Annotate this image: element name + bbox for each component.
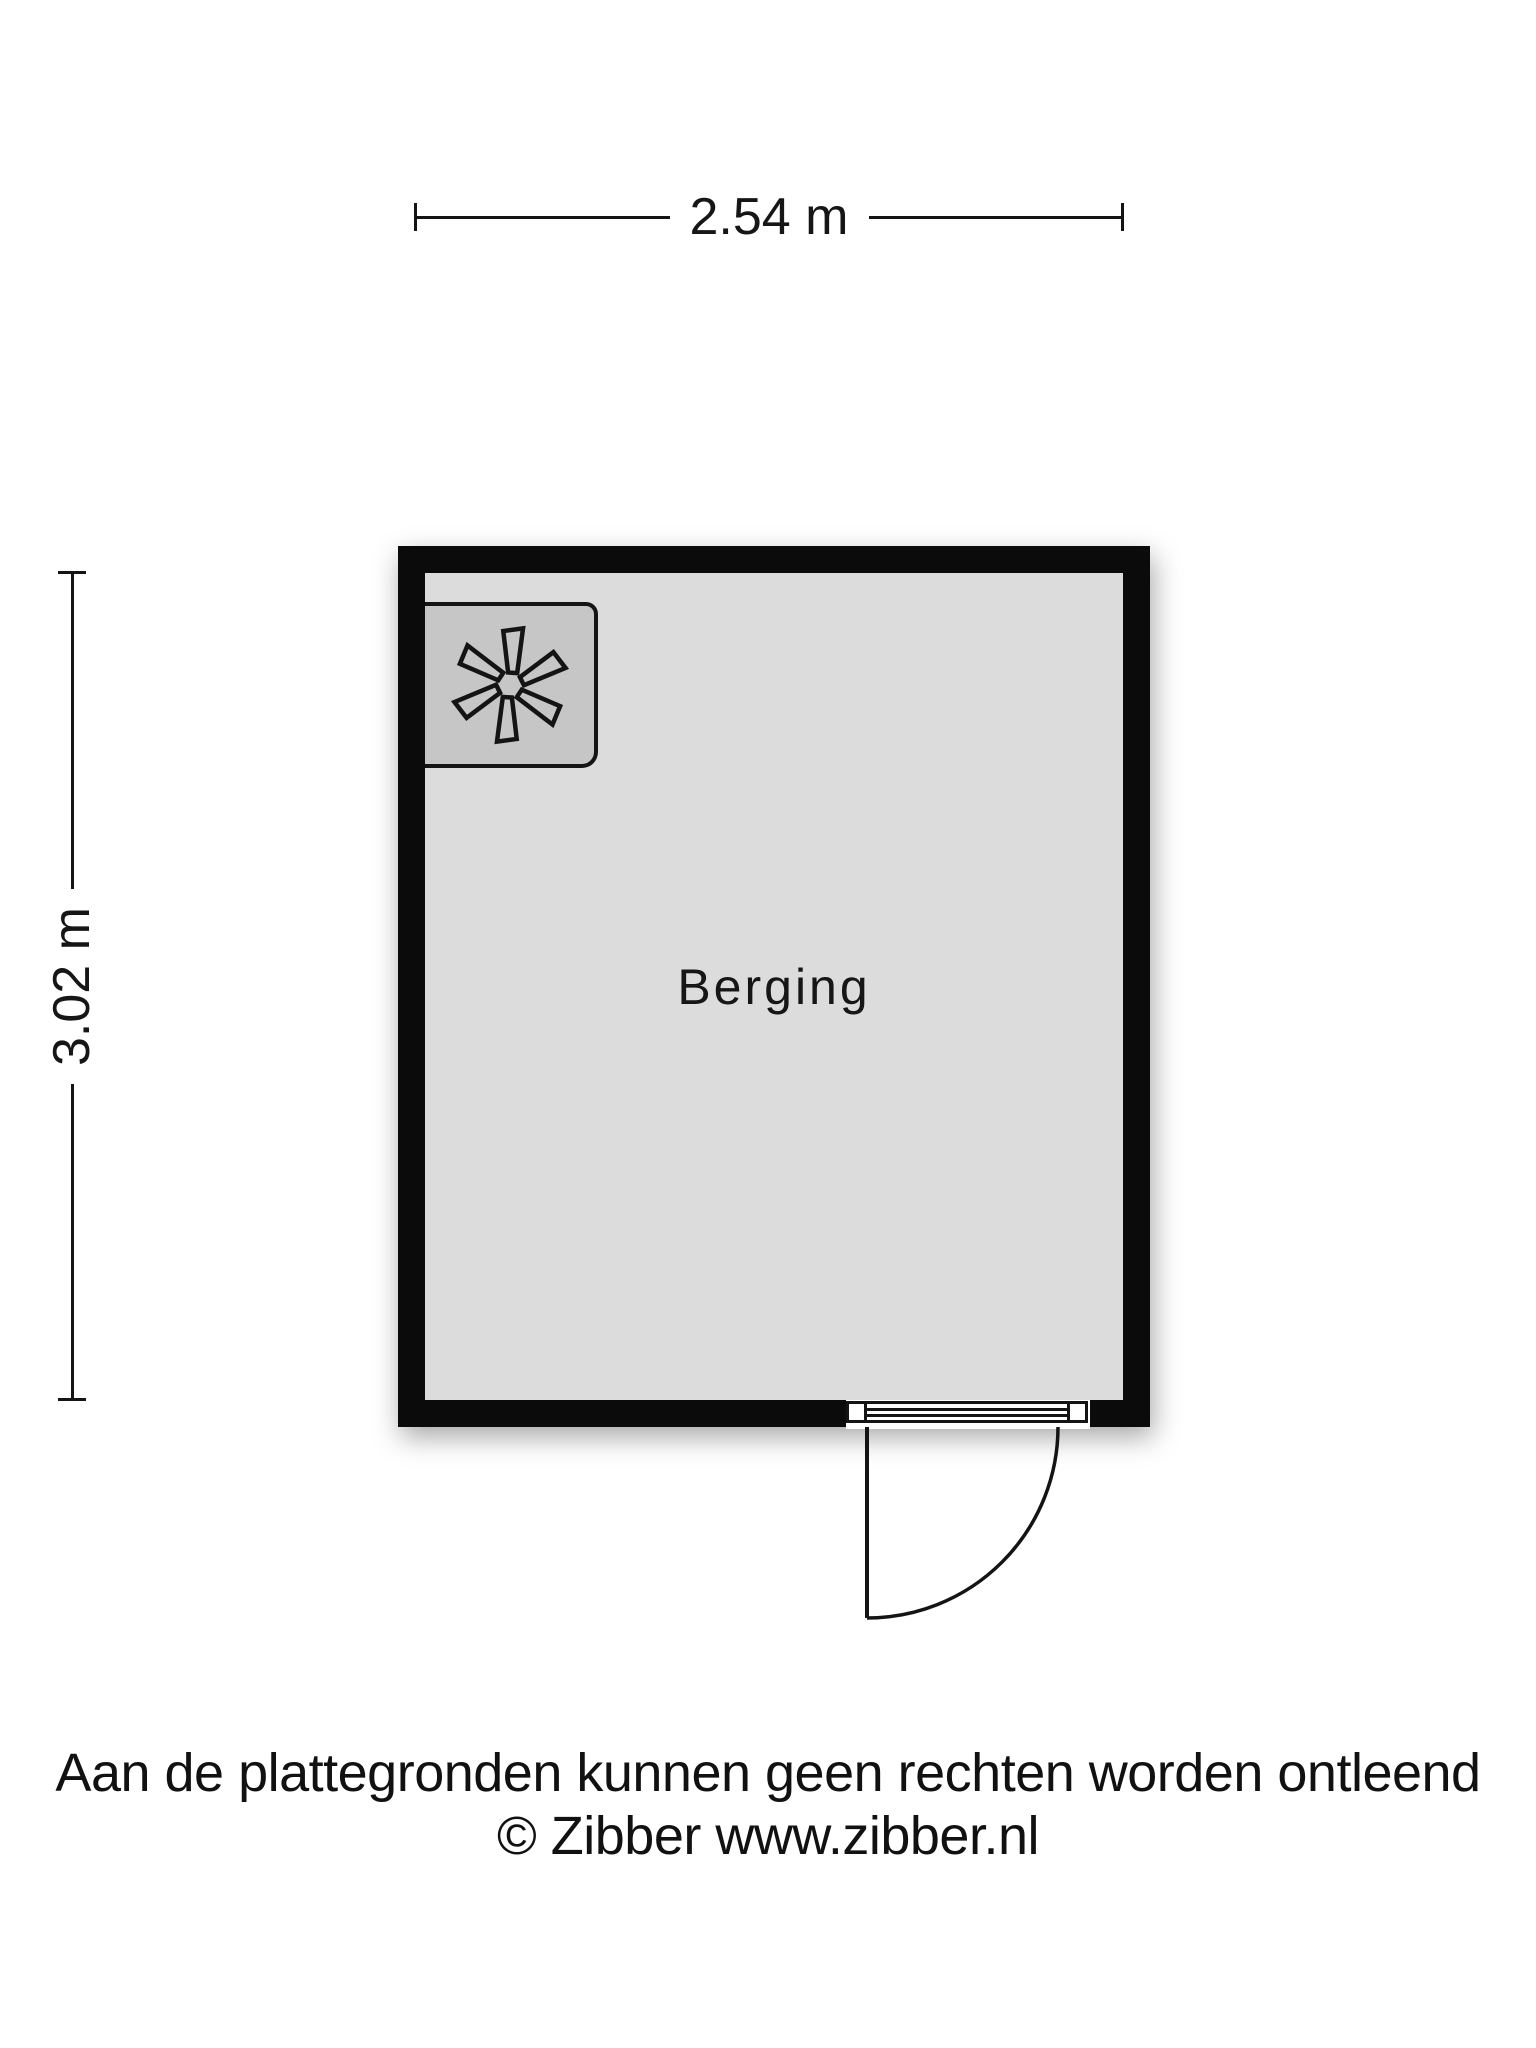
dimension-line	[71, 572, 74, 889]
dimension-line	[415, 216, 670, 219]
door-swing-arc	[867, 1427, 1058, 1618]
width-dimension: 2.54 m	[415, 189, 1123, 245]
room-label: Berging	[677, 958, 870, 1016]
footer-copyright: © Zibber www.zibber.nl	[0, 1805, 1536, 1868]
height-dimension-label: 3.02 m	[42, 889, 102, 1084]
width-dimension-label: 2.54 m	[670, 187, 869, 247]
footer: Aan de plattegronden kunnen geen rechten…	[0, 1742, 1536, 1868]
room-berging: Berging	[398, 546, 1150, 1427]
height-dimension: 3.02 m	[44, 572, 100, 1400]
door-jamb-right	[1067, 1401, 1088, 1423]
footer-disclaimer: Aan de plattegronden kunnen geen rechten…	[0, 1742, 1536, 1805]
door-threshold	[867, 1401, 1067, 1423]
floorplan-page: 2.54 m 3.02 m Berging	[0, 0, 1536, 2048]
dimension-line	[869, 216, 1124, 219]
dimension-line	[71, 1084, 74, 1401]
door-jamb-left	[846, 1401, 867, 1423]
door	[846, 1424, 1086, 1630]
